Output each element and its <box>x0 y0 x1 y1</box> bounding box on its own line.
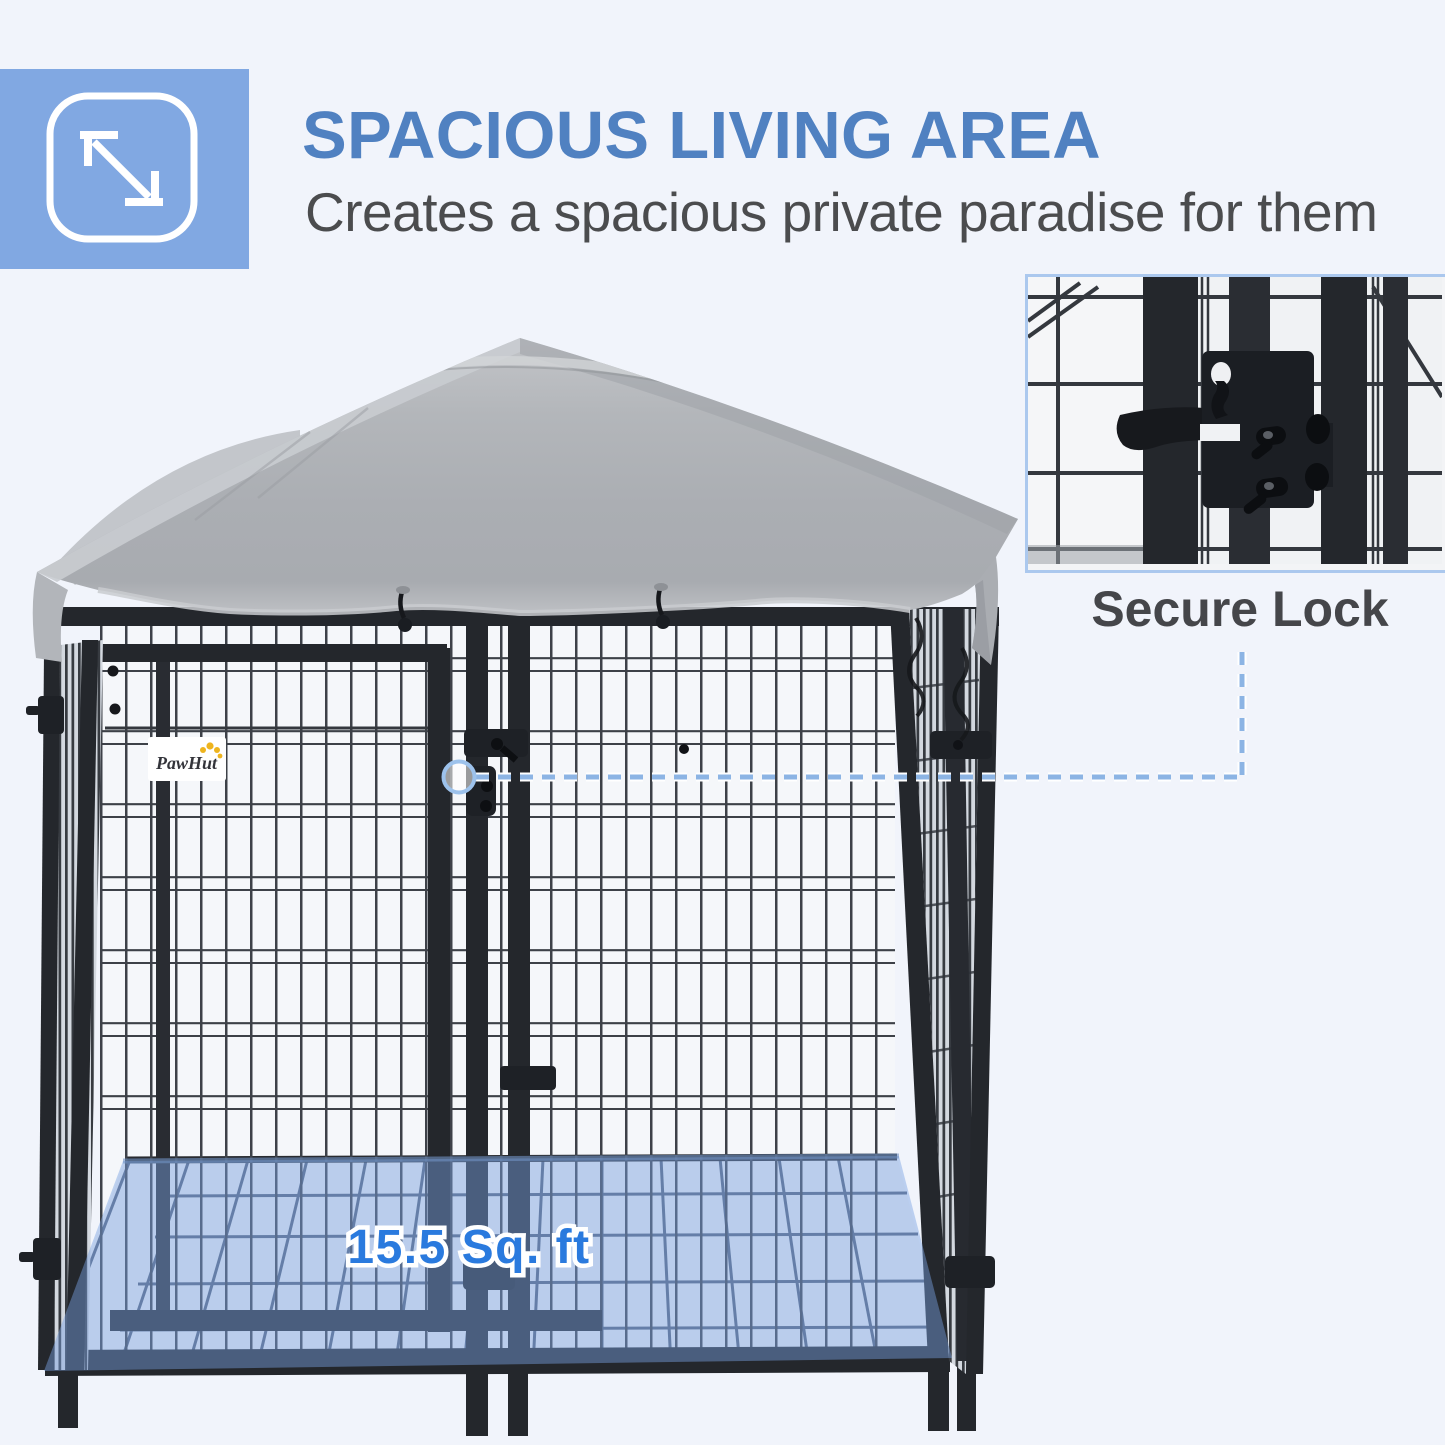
svg-text:15.5 Sq. ft: 15.5 Sq. ft <box>347 1221 590 1274</box>
svg-text:PawHut: PawHut <box>155 753 218 773</box>
